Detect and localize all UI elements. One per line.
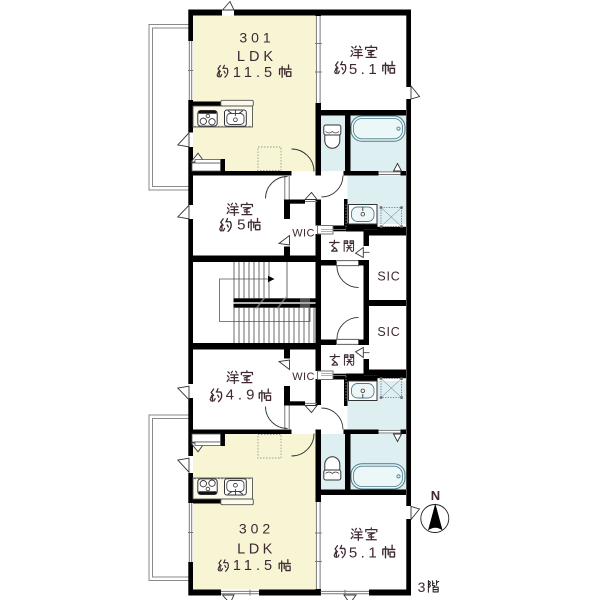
svg-text:5.1: 5.1: [349, 61, 380, 78]
svg-text:LDK: LDK: [237, 49, 277, 65]
svg-text:11.5: 11.5: [233, 65, 276, 81]
svg-text:3: 3: [418, 579, 426, 595]
svg-text:302: 302: [239, 520, 274, 536]
svg-text:4.9: 4.9: [226, 387, 259, 404]
svg-text:5: 5: [237, 217, 245, 234]
svg-text:301: 301: [239, 30, 274, 46]
svg-text:11.5: 11.5: [233, 558, 276, 574]
svg-text:LDK: LDK: [237, 542, 276, 558]
svg-text:SIC: SIC: [377, 325, 400, 339]
svg-text:5.1: 5.1: [349, 544, 380, 561]
svg-text:WIC: WIC: [292, 371, 315, 383]
svg-text:SIC: SIC: [377, 270, 400, 284]
svg-text:WIC: WIC: [292, 227, 315, 239]
svg-text:N: N: [431, 488, 440, 503]
